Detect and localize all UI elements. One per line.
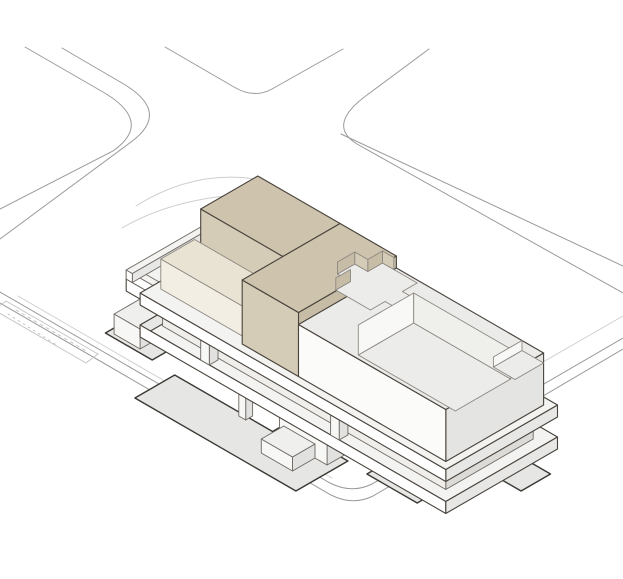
street-corner-left-inner [0, 48, 149, 239]
street-corner-right-curb [341, 134, 623, 266]
building-axonometric-canvas [0, 0, 623, 579]
parking-strip-hatch-2 [8, 314, 58, 346]
parking-strip-hatch-1 [16, 310, 88, 352]
street-corner-north [165, 47, 343, 94]
axonometric-site-drawing [0, 0, 623, 579]
street-corner-left-outer [0, 47, 131, 209]
